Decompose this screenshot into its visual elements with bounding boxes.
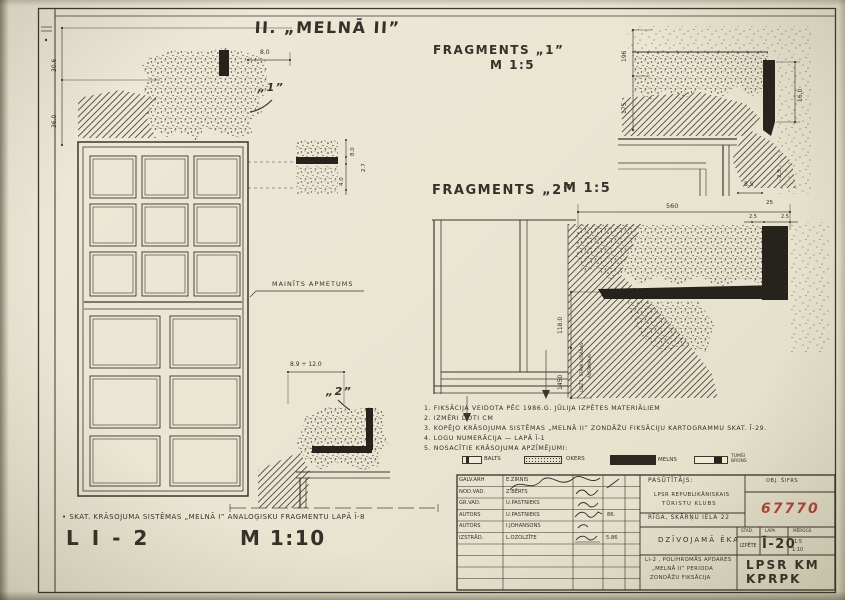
marker-2: „2” — [326, 386, 352, 397]
detail-1-strip — [248, 100, 347, 195]
tb-obj-code-label: OBJ. ŠIFRS — [766, 479, 798, 484]
tb-role-6: IZSTRĀD. — [459, 536, 483, 541]
dim-f2-25b: 2.5 — [781, 215, 789, 220]
dim-d1-c: 4.0 — [340, 177, 346, 186]
tb-role-5: AUTORS — [459, 524, 481, 529]
note-3: 3. KOPĒJO KRĀSOJUMA SISTĒMAS „MELNĀ II” … — [424, 426, 767, 432]
dim-36-0: 36.0 — [52, 115, 58, 128]
tb-role-2: NOD.VAD. — [459, 490, 485, 495]
tb-scale-2: 1:10 — [792, 548, 803, 553]
swatch-tick — [466, 457, 469, 463]
tb-col-scale: MĒROGS — [793, 529, 811, 533]
marker-1: „1” — [258, 82, 284, 93]
dim-f1-175: 175 — [622, 103, 628, 114]
dim-d1-b: 2.7 — [362, 163, 368, 172]
legend-label-okers: OKERS — [566, 457, 585, 463]
tb-org-line2: KPRPK — [746, 573, 801, 585]
dim-30-6: 30.6 — [52, 59, 58, 72]
window-elevation — [78, 142, 248, 496]
legend-swatch-balts — [462, 456, 482, 464]
tb-project-line2: „MELNĀ II” PERIODA — [652, 567, 713, 572]
fragment2-heading: FRAGMENTS „2” — [432, 184, 573, 197]
fragment1-heading: FRAGMENTS „1” — [433, 44, 564, 56]
tb-project-line3: ZONDĀŽU FIKSĀCIJA — [650, 576, 711, 581]
drawing-linework — [0, 0, 845, 600]
frag2-vertical-note-2: AUGŠMALAI — [588, 354, 592, 378]
tb-org-line1: LPSR KM — [746, 559, 820, 571]
tb-name-4: U.PASTNIEKS — [506, 513, 540, 518]
tb-name-5: I.JOHANSONS — [506, 524, 541, 529]
tb-project-line1: LI-2 , POLIHROMĀS APDARES — [645, 558, 732, 563]
dim-d1-a: 8.0 — [351, 147, 357, 156]
tb-stage-value: IZPĒTE — [740, 545, 757, 550]
tb-col-stage: STAD. — [741, 529, 753, 533]
dim-f1-25: 2.5 — [778, 169, 784, 178]
tb-extra-4: 86. — [607, 513, 615, 518]
tb-obj-code: 67770 — [761, 502, 820, 516]
tb-scale-1: 1:5 — [794, 540, 802, 545]
tb-name-6: L.OZOLZĪTE — [506, 536, 537, 541]
dim-8-0-top: 8.0 — [260, 50, 270, 56]
mainits-apmetums-label: MAINĪTS APMETUMS — [272, 281, 353, 288]
frag2-vertical-note-1: LĪDZ 1. STĀVA LOGAILAS — [580, 343, 584, 392]
swatch-square — [714, 457, 722, 463]
plaster-cloud-top-left — [78, 48, 268, 140]
note-4: 4. LOGU NUMERĀCIJA — LAPĀ Ī-1 — [424, 436, 545, 442]
legend-swatch-okers — [524, 456, 562, 464]
tb-name-2: Z.BĒRTS — [506, 490, 528, 495]
dim-f2-1450: 1450 — [558, 375, 564, 390]
legend-label-tumsi-bruns: TUMŠI BRŪNS — [731, 454, 759, 464]
dim-f1-196: 196 — [622, 51, 628, 62]
tb-role-4: AUTORS — [459, 513, 481, 518]
dim-f1-160: 16,0 — [798, 89, 804, 102]
tb-address: RĪGA, SKĀRŅU IELA 22 — [648, 516, 730, 522]
label-leader — [250, 291, 364, 297]
tb-name-1: E.ZIRNIS — [506, 478, 528, 483]
dim-f2-25: 25 — [766, 201, 773, 207]
legend-swatch-tumsi-bruns — [694, 456, 728, 464]
dim-d2-range: 8.9 ÷ 12.0 — [290, 362, 322, 368]
dim-f1-85: 8.5 — [744, 182, 754, 188]
legend-swatch-melns — [610, 455, 656, 465]
tb-col-sheet: LAPA — [765, 529, 775, 533]
detail-2 — [258, 371, 390, 508]
note-5: 5. NOSACĪTIE KRĀSOJUMA APZĪMĒJUMI: — [424, 446, 568, 452]
tb-building: DZĪVOJAMĀ ĒKA — [658, 537, 740, 544]
dim-f2-560: 560 — [666, 203, 678, 210]
bottom-reference-note: • SKAT. KRĀSOJUMA SISTĒMAS „MELNĀ I” ANA… — [62, 514, 365, 521]
tb-role-3: GR.VAD. — [459, 501, 481, 506]
tb-client-label: PASŪTĪTĀJS: — [648, 478, 693, 484]
tb-client-line2: TŪRISTU KLUBS — [662, 502, 716, 507]
fragment2-drawing — [432, 204, 830, 422]
legend-label-melns: MELNS — [658, 458, 677, 464]
tb-client-line1: LPSR REPUBLIKĀNISKAIS — [654, 493, 730, 498]
dim-f2-1180: 118.0 — [558, 317, 564, 334]
tb-name-3: U.PASTNIEKS — [506, 501, 540, 506]
sheet-code: L I - 2 — [66, 528, 150, 548]
legend-label-balts: BALTS — [484, 457, 501, 463]
drawing-sheet: II. „MELNĀ II” FRAGMENTS „1” M 1:5 FRAGM… — [0, 0, 845, 600]
sheet-title: II. „MELNĀ II” — [254, 20, 401, 36]
fragment1-scale: M 1:5 — [490, 59, 535, 71]
dim-f2-25a: 2.5 — [749, 215, 757, 220]
fragment2-scale: M 1:5 — [563, 182, 611, 195]
tb-role-1: GALV.ARH — [459, 478, 484, 483]
tb-extra-6: 5.86 — [606, 536, 618, 541]
sheet-scale-label: M 1:10 — [240, 528, 326, 548]
note-1: 1. FIKSĀCIJA VEIDOTA PĒC 1986.G. JŪLIJA … — [424, 406, 660, 412]
note-2: 2. IZMĒRI DOTI CM — [424, 416, 493, 422]
